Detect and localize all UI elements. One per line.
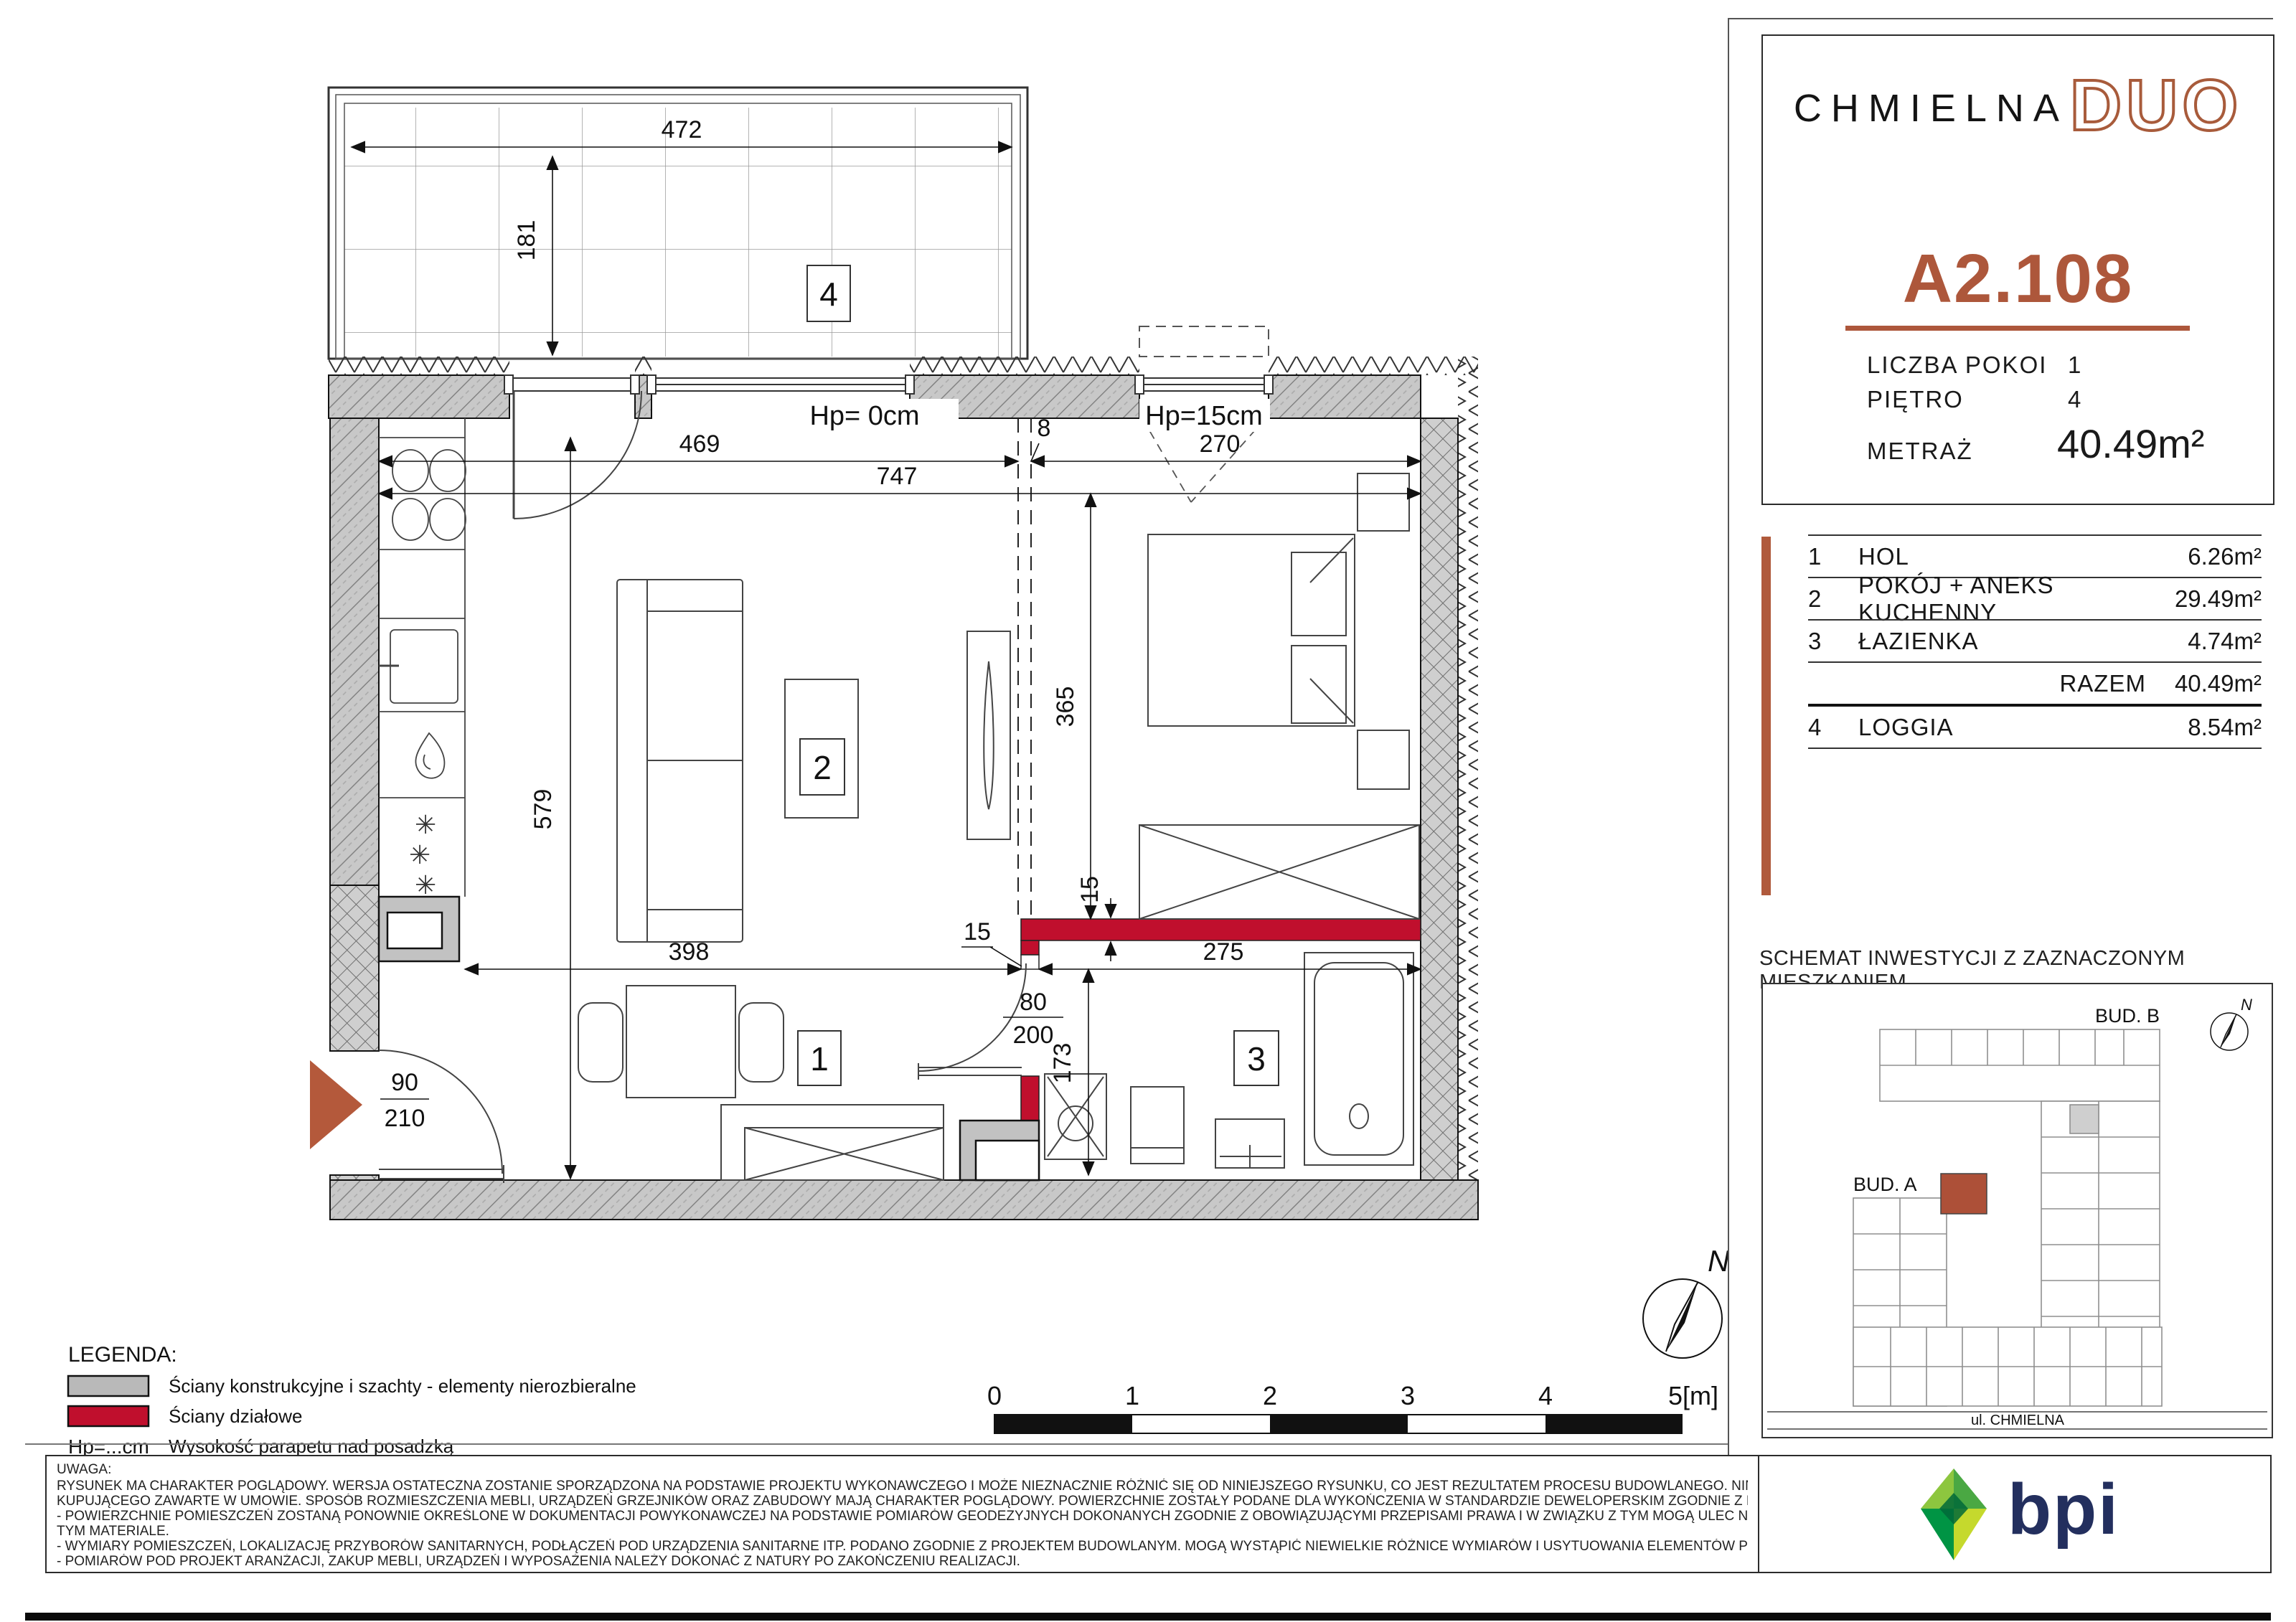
notes-line: - POMIARÓW POD PROJEKT ARANŻACJI, ZAKUP …	[57, 1554, 1748, 1569]
unit-details-panel: A2.108 LICZBA POKOI 1 PIĘTRO 4 METRAŻ 40…	[1761, 179, 2274, 505]
notes-line: KUPUJĄCEGO ZAWARTE W UMOWIE. SPOSÓB ROZM…	[57, 1494, 1748, 1509]
row-name: POKÓJ + ANEKS KUCHENNY	[1858, 572, 2175, 626]
dining-set	[578, 986, 784, 1098]
detail-value-area: 40.49m²	[2057, 420, 2204, 467]
frame-line-vertical	[1728, 18, 1729, 1455]
cabinet	[1131, 1087, 1184, 1164]
notes-line: - POWIERZCHNIE POMIESZCZEŃ ZOSTANĄ PONOW…	[57, 1509, 1748, 1524]
detail-value-floor: 4	[2068, 386, 2081, 413]
scale-bar: 0 1 2 3 4 5[m]	[987, 1381, 1718, 1433]
dim-15-wall: 15	[1076, 876, 1104, 903]
dim-15-step: 15	[964, 918, 991, 946]
nightstand	[1358, 730, 1409, 789]
brand-name: CHMIELNA	[1794, 86, 2069, 131]
washing-machine	[1045, 1074, 1106, 1159]
fridge-icon: ✳✳✳	[409, 810, 436, 900]
detail-label-rooms: LICZBA POKOI	[1867, 352, 2047, 379]
street-label: ul. CHMIELNA	[1971, 1413, 2065, 1428]
developer-logo-panel: bpi	[1759, 1455, 2272, 1573]
entry-arrow-icon	[310, 1060, 362, 1149]
floor-plan-drawing: ✳✳✳	[0, 0, 1728, 1455]
notes-title: UWAGA:	[57, 1462, 1748, 1477]
hob-icon	[392, 450, 466, 540]
row-no: 3	[1808, 628, 1858, 655]
room-tag-living: 2	[813, 749, 832, 786]
svg-text:0: 0	[987, 1381, 1002, 1410]
table-row-total: RAZEM 40.49m²	[1808, 661, 2262, 704]
room-tag-bath: 3	[1247, 1040, 1266, 1078]
svg-text:3: 3	[1401, 1381, 1415, 1410]
row-area: 29.49m²	[2175, 585, 2262, 613]
row-area: 4.74m²	[2188, 628, 2262, 655]
dim-bathdoor-width: 80	[1020, 989, 1047, 1016]
legend-partition-swatch	[68, 1406, 149, 1426]
site-north-label: N	[2241, 996, 2252, 1014]
svg-text:4: 4	[1538, 1381, 1553, 1410]
floorplan-sheet: ✳✳✳	[0, 0, 2296, 1622]
svg-text:✳: ✳	[415, 870, 436, 900]
svg-text:2: 2	[1263, 1381, 1277, 1410]
nightstand	[1358, 473, 1409, 531]
room-area-table: 1 HOL 6.26m² 2 POKÓJ + ANEKS KUCHENNY 29…	[1808, 534, 2262, 749]
bathroom-fixtures	[1045, 953, 1413, 1168]
svg-text:✳: ✳	[409, 840, 430, 869]
row-no: 2	[1808, 585, 1858, 613]
north-label: N	[1708, 1244, 1728, 1278]
dim-579: 579	[530, 789, 557, 830]
table-row: 3 ŁAZIENKA 4.74m²	[1808, 619, 2262, 661]
legend-item-partition: Ściany działowe	[169, 1405, 302, 1427]
dim-365: 365	[1052, 687, 1079, 727]
hp15-label: Hp=15cm	[1145, 401, 1263, 431]
dim-8: 8	[1038, 415, 1051, 442]
detail-label-floor: PIĘTRO	[1867, 386, 1964, 413]
brand-suffix-logo: DUO	[2070, 65, 2242, 147]
dim-181: 181	[513, 220, 540, 261]
hp0-label: Hp= 0cm	[809, 401, 919, 431]
svg-text:5[m]: 5[m]	[1668, 1381, 1718, 1410]
legend-item-sill: Wysokość parapetu nad posadzką	[169, 1435, 454, 1455]
notes-line: - WYMIARY POMIESZCZEŃ, LOKALIZACJĘ PRZYB…	[57, 1539, 1748, 1554]
toilet	[1215, 1119, 1284, 1168]
living-furniture	[578, 580, 1010, 1098]
unit-id: A2.108	[1763, 240, 2273, 319]
notes-line: RYSUNEK MA CHARAKTER POGLĄDOWY. WERSJA O…	[57, 1479, 1748, 1494]
frame-line-horizontal	[25, 1443, 1728, 1445]
detail-label-area: METRAŻ	[1867, 438, 1973, 465]
notes-panel: UWAGA: RYSUNEK MA CHARAKTER POGLĄDOWY. W…	[45, 1455, 1759, 1573]
dim-469: 469	[679, 430, 720, 458]
legend-item-structural: Ściany konstrukcyjne i szachty - element…	[169, 1375, 636, 1397]
windows	[504, 375, 1273, 394]
table-row: 2 POKÓJ + ANEKS KUCHENNY 29.49m²	[1808, 577, 2262, 619]
legend-title: LEGENDA:	[68, 1343, 177, 1367]
bathtub	[1304, 953, 1413, 1165]
brand-logo: CHMIELNA DUO	[1761, 34, 2274, 182]
dim-bathdoor-height: 200	[1013, 1022, 1054, 1049]
structural-walls	[329, 375, 1478, 1220]
unit-underline	[1845, 326, 2190, 331]
svg-text:1: 1	[1125, 1381, 1139, 1410]
dim-entry-height: 210	[385, 1105, 425, 1132]
row-no: 1	[1808, 543, 1858, 570]
kitchen: ✳✳✳	[379, 418, 466, 900]
sheet-footer-bar	[25, 1613, 2271, 1621]
tv-cabinet	[967, 631, 1010, 839]
sofa	[617, 580, 743, 942]
total-label: RAZEM	[1858, 670, 2175, 697]
dim-275: 275	[1203, 938, 1244, 966]
site-plan-map: BUD. A BUD. B N ul. CHMIELNA	[1761, 983, 2273, 1438]
bpi-diamond-icon	[1910, 1464, 1998, 1565]
balcony-door	[514, 391, 641, 519]
detail-value-rooms: 1	[2068, 352, 2081, 379]
dim-472: 472	[662, 116, 702, 143]
row-name: ŁAZIENKA	[1858, 628, 2188, 655]
row-name: HOL	[1858, 543, 2188, 570]
gas-flame-icon	[415, 733, 444, 778]
hall-furniture	[721, 1105, 944, 1180]
row-area: 6.26m²	[2188, 543, 2262, 570]
unit-marker	[1941, 1174, 1987, 1214]
svg-text:✳: ✳	[415, 810, 436, 839]
building-a-label: BUD. A	[1853, 1174, 1917, 1195]
dim-entry-width: 90	[391, 1069, 418, 1096]
room-tag-loggia: 4	[819, 275, 838, 313]
bpi-logo-text: bpi	[2008, 1468, 2119, 1551]
legend-hp-symbol: Hp=...cm	[68, 1435, 149, 1455]
sink-icon	[379, 630, 458, 703]
dim-270: 270	[1200, 430, 1241, 458]
compass: N	[1643, 1244, 1728, 1358]
legend: LEGENDA: Ściany konstrukcyjne i szachty …	[68, 1343, 636, 1455]
bedroom-furniture	[1139, 473, 1419, 919]
notes-line: TYM MATERIALE.	[57, 1524, 1748, 1539]
wardrobe-bedroom	[1139, 825, 1419, 919]
table-row: 1 HOL 6.26m²	[1808, 534, 2262, 577]
legend-structural-swatch	[68, 1376, 149, 1396]
room-tag-hall: 1	[810, 1040, 829, 1078]
dim-398: 398	[669, 938, 710, 966]
dim-747: 747	[877, 463, 918, 490]
bathroom-door	[918, 963, 1026, 1080]
total-value: 40.49m²	[2175, 670, 2262, 697]
accent-bar	[1761, 537, 1771, 895]
bed	[1148, 534, 1355, 726]
row-area: 8.54m²	[2188, 714, 2262, 741]
row-name: LOGGIA	[1858, 714, 2188, 741]
building-b-label: BUD. B	[2095, 1005, 2160, 1027]
frame-line-top	[1728, 18, 2273, 19]
row-no: 4	[1808, 714, 1858, 741]
table-row-loggia: 4 LOGGIA 8.54m²	[1808, 704, 2262, 749]
dim-173: 173	[1049, 1043, 1076, 1084]
